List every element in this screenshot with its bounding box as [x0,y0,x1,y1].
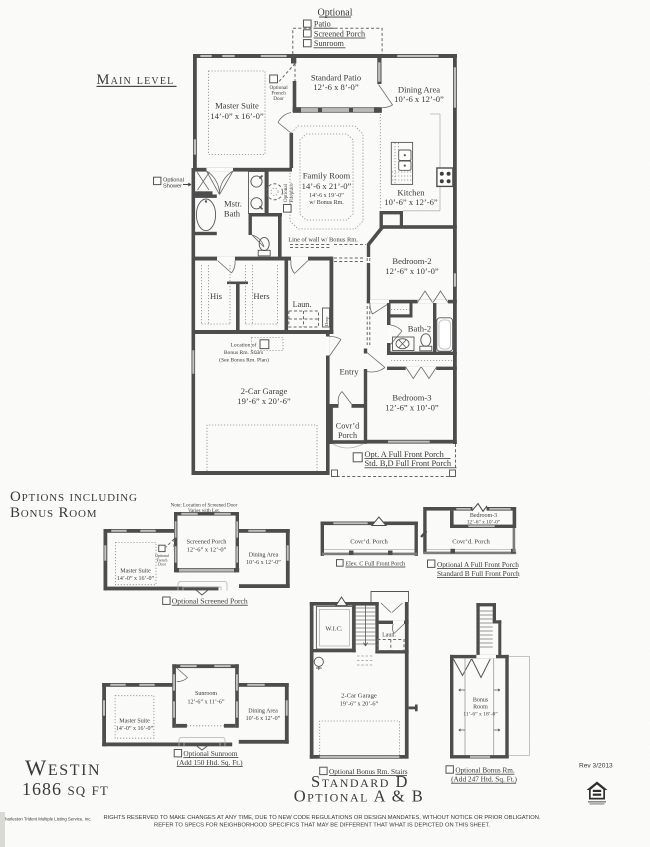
svg-text:Bonus Rm. Stairs: Bonus Rm. Stairs [224,350,263,356]
svg-text:Optional: Optional [163,177,184,183]
svg-text:19’-6” x 20’-6”: 19’-6” x 20’-6” [340,701,379,708]
svg-text:Sunroom: Sunroom [314,39,345,48]
svg-text:Bonus: Bonus [473,698,489,704]
svg-text:Bedroom-3: Bedroom-3 [470,513,497,519]
svg-text:Options including: Options including [10,489,138,505]
svg-text:Line of wall w/ Bonus Rm.: Line of wall w/ Bonus Rm. [288,237,358,244]
svg-text:(Add 150 Htd. Sq. Ft.): (Add 150 Htd. Sq. Ft.) [177,758,243,767]
svg-text:Bath-2: Bath-2 [408,324,431,334]
svg-text:Standard Patio: Standard Patio [311,73,361,83]
svg-text:14’-6 x 19’-0”: 14’-6 x 19’-0” [309,193,344,199]
svg-text:Master Suite: Master Suite [120,569,151,575]
svg-text:Elev. C Full Front Porch: Elev. C Full Front Porch [345,561,405,567]
svg-text:Screened Porch: Screened Porch [187,539,228,546]
svg-text:Optional A & B: Optional A & B [294,787,425,806]
svg-text:(Add 247 Htd. Sq. Ft.): (Add 247 Htd. Sq. Ft.) [451,775,517,784]
svg-text:14’-0” x 16’-0”: 14’-0” x 16’-0” [116,726,154,732]
svg-text:Door: Door [273,96,284,102]
svg-text:14’-0” x 16’-0”: 14’-0” x 16’-0” [117,576,155,582]
svg-text:11’-6” x 18’-0”: 11’-6” x 18’-0” [463,712,498,718]
svg-text:Optional Screened Porch: Optional Screened Porch [172,597,248,606]
svg-text:Dining Area: Dining Area [398,85,440,95]
svg-text:Covr’d. Porch: Covr’d. Porch [452,539,490,546]
svg-text:Optional A Full Front Porch: Optional A Full Front Porch [437,560,519,569]
svg-text:Charleston Trident Multiple Li: Charleston Trident Multiple Listing Serv… [2,817,92,822]
svg-text:Family Room: Family Room [303,171,351,181]
svg-text:Master Suite: Master Suite [215,101,259,111]
svg-text:14’-0” x 16’-0”: 14’-0” x 16’-0” [210,111,264,121]
svg-text:Note: Location of Screened Doo: Note: Location of Screened Door [171,504,238,509]
svg-text:Room: Room [473,705,488,711]
svg-text:Shower: Shower [163,184,182,190]
svg-text:Bedroom-3: Bedroom-3 [392,393,431,403]
svg-text:Std. B,D Full Front Porch: Std. B,D Full Front Porch [365,459,452,468]
svg-text:2-Car Garage: 2-Car Garage [241,386,288,396]
svg-text:12’-6” x 10’-0”: 12’-6” x 10’-0” [467,520,501,526]
svg-text:W.I.C.: W.I.C. [325,626,343,633]
svg-text:Optional Bonus Rm.: Optional Bonus Rm. [455,767,515,775]
svg-text:Door: Door [158,563,167,567]
svg-text:Opt. A Full Front Porch: Opt. A Full Front Porch [365,450,445,459]
svg-text:10’-6 x 12’-0”: 10’-6 x 12’-0” [246,716,281,722]
svg-text:12’-6” x 11’-6”: 12’-6” x 11’-6” [187,700,224,706]
svg-text:Bath: Bath [224,209,241,219]
svg-text:10’-6 x 12’-0”: 10’-6 x 12’-0” [246,560,281,566]
svg-text:12’-6” x 10’-0”: 12’-6” x 10’-0” [385,403,439,413]
svg-text:Westin: Westin [25,755,101,780]
svg-text:Rev 3/2013: Rev 3/2013 [579,763,613,770]
svg-text:Mstr.: Mstr. [224,199,242,209]
svg-text:12’-6” x 10’-0”: 12’-6” x 10’-0” [385,266,439,276]
svg-text:12’-6” x 12’-0”: 12’-6” x 12’-0” [187,547,227,554]
svg-text:REFER TO SPECS FOR NEIGHBORHOO: REFER TO SPECS FOR NEIGHBORHOOD SPECIFIC… [154,823,490,829]
svg-text:Entry: Entry [339,367,359,377]
svg-text:Screened Porch: Screened Porch [314,29,365,38]
svg-text:His: His [210,291,223,301]
svg-text:Covr’d. Porch: Covr’d. Porch [350,539,388,546]
svg-text:w/ Bonus Rm.: w/ Bonus Rm. [309,200,344,206]
svg-text:Dining Area: Dining Area [249,553,279,559]
svg-text:12’-6 x 8’-0”: 12’-6 x 8’-0” [313,82,359,92]
svg-text:Sunroom: Sunroom [195,691,217,697]
svg-text:Bedroom-2: Bedroom-2 [392,256,431,266]
svg-text:10’-6 x 12’-0”: 10’-6 x 12’-0” [394,94,444,104]
svg-text:Standard B Full Front Porch: Standard B Full Front Porch [437,569,520,578]
svg-text:RIGHTS RESERVED TO MAKE CHANGE: RIGHTS RESERVED TO MAKE CHANGES AT ANY T… [104,815,541,821]
svg-text:Fireplace: Fireplace [289,183,295,203]
svg-text:Laun.: Laun. [382,633,396,639]
svg-text:Covr’d: Covr’d [336,422,360,431]
svg-text:(See Bonus Rm. Plan): (See Bonus Rm. Plan) [219,357,269,364]
svg-text:Laun.: Laun. [293,300,312,309]
svg-text:Dining Area: Dining Area [248,709,278,715]
svg-text:Drop: Drop [324,316,329,326]
svg-text:Optional Sunroom: Optional Sunroom [183,749,237,758]
svg-text:1686 sq ft: 1686 sq ft [22,779,109,799]
svg-text:Main level: Main level [97,72,175,88]
svg-text:14’-6 x 21’-0”: 14’-6 x 21’-0” [302,181,352,191]
svg-text:19’-6” x 20’-6”: 19’-6” x 20’-6” [237,396,291,406]
svg-text:Bonus Room: Bonus Room [10,505,97,521]
svg-text:Master Suite: Master Suite [119,719,150,725]
svg-text:2-Car Garage: 2-Car Garage [341,693,377,700]
svg-text:Location of: Location of [231,342,257,349]
svg-text:Kitchen: Kitchen [397,188,425,198]
svg-text:10’-6” x 12’-6”: 10’-6” x 12’-6” [384,197,438,207]
svg-text:Porch: Porch [338,431,357,440]
svg-text:Hers: Hers [253,291,270,301]
svg-text:Patio: Patio [314,20,331,29]
